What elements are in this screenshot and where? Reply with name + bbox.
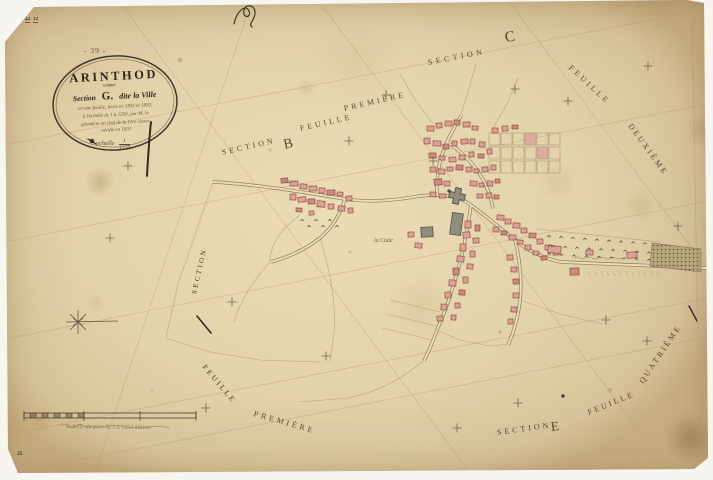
- stamp-number: 12: [33, 17, 38, 23]
- section-letter: G.: [101, 90, 113, 103]
- yard-grid: [489, 133, 560, 173]
- scale-word: echelle: [96, 140, 114, 147]
- archive-stamp-bottom: 25: [17, 451, 23, 457]
- section-superscript: unique: [103, 82, 115, 88]
- section-c-letter: C: [504, 29, 516, 47]
- slope-hachures: [588, 271, 659, 276]
- handwriting-squiggles: [60, 181, 622, 428]
- sheet-number: - 39 -: [84, 46, 106, 55]
- scale-bar-caption: Echelle du plan de 1 à 1250 Mètres: [66, 424, 151, 431]
- cadastral-map-sheet: - 39 - 2212 25 ARINTHOD Section uniqueG.…: [0, 0, 713, 480]
- church-tower-icon: [447, 189, 450, 192]
- boundary-crosses: [106, 62, 683, 433]
- section-word: Section: [73, 93, 96, 103]
- church-building: [448, 187, 467, 206]
- stamp-number: 22: [25, 17, 30, 23]
- scale-numerator: 1: [119, 138, 130, 145]
- paper-sheet: - 39 - 2212 25 ARINTHOD Section uniqueG.…: [0, 0, 713, 480]
- scale-bar: [24, 411, 196, 421]
- section-name: dite la Ville: [119, 90, 157, 101]
- archive-stamp-top: 2212: [25, 17, 41, 22]
- hamlet-label: la Cude: [374, 238, 393, 244]
- ink-flourish: [88, 6, 697, 333]
- public-buildings: [421, 212, 464, 237]
- scale-denominator: 1250: [119, 145, 130, 151]
- scale-fraction: echelle 11250: [96, 138, 130, 151]
- ink-dot: [561, 394, 564, 397]
- paper-fold: [692, 4, 700, 462]
